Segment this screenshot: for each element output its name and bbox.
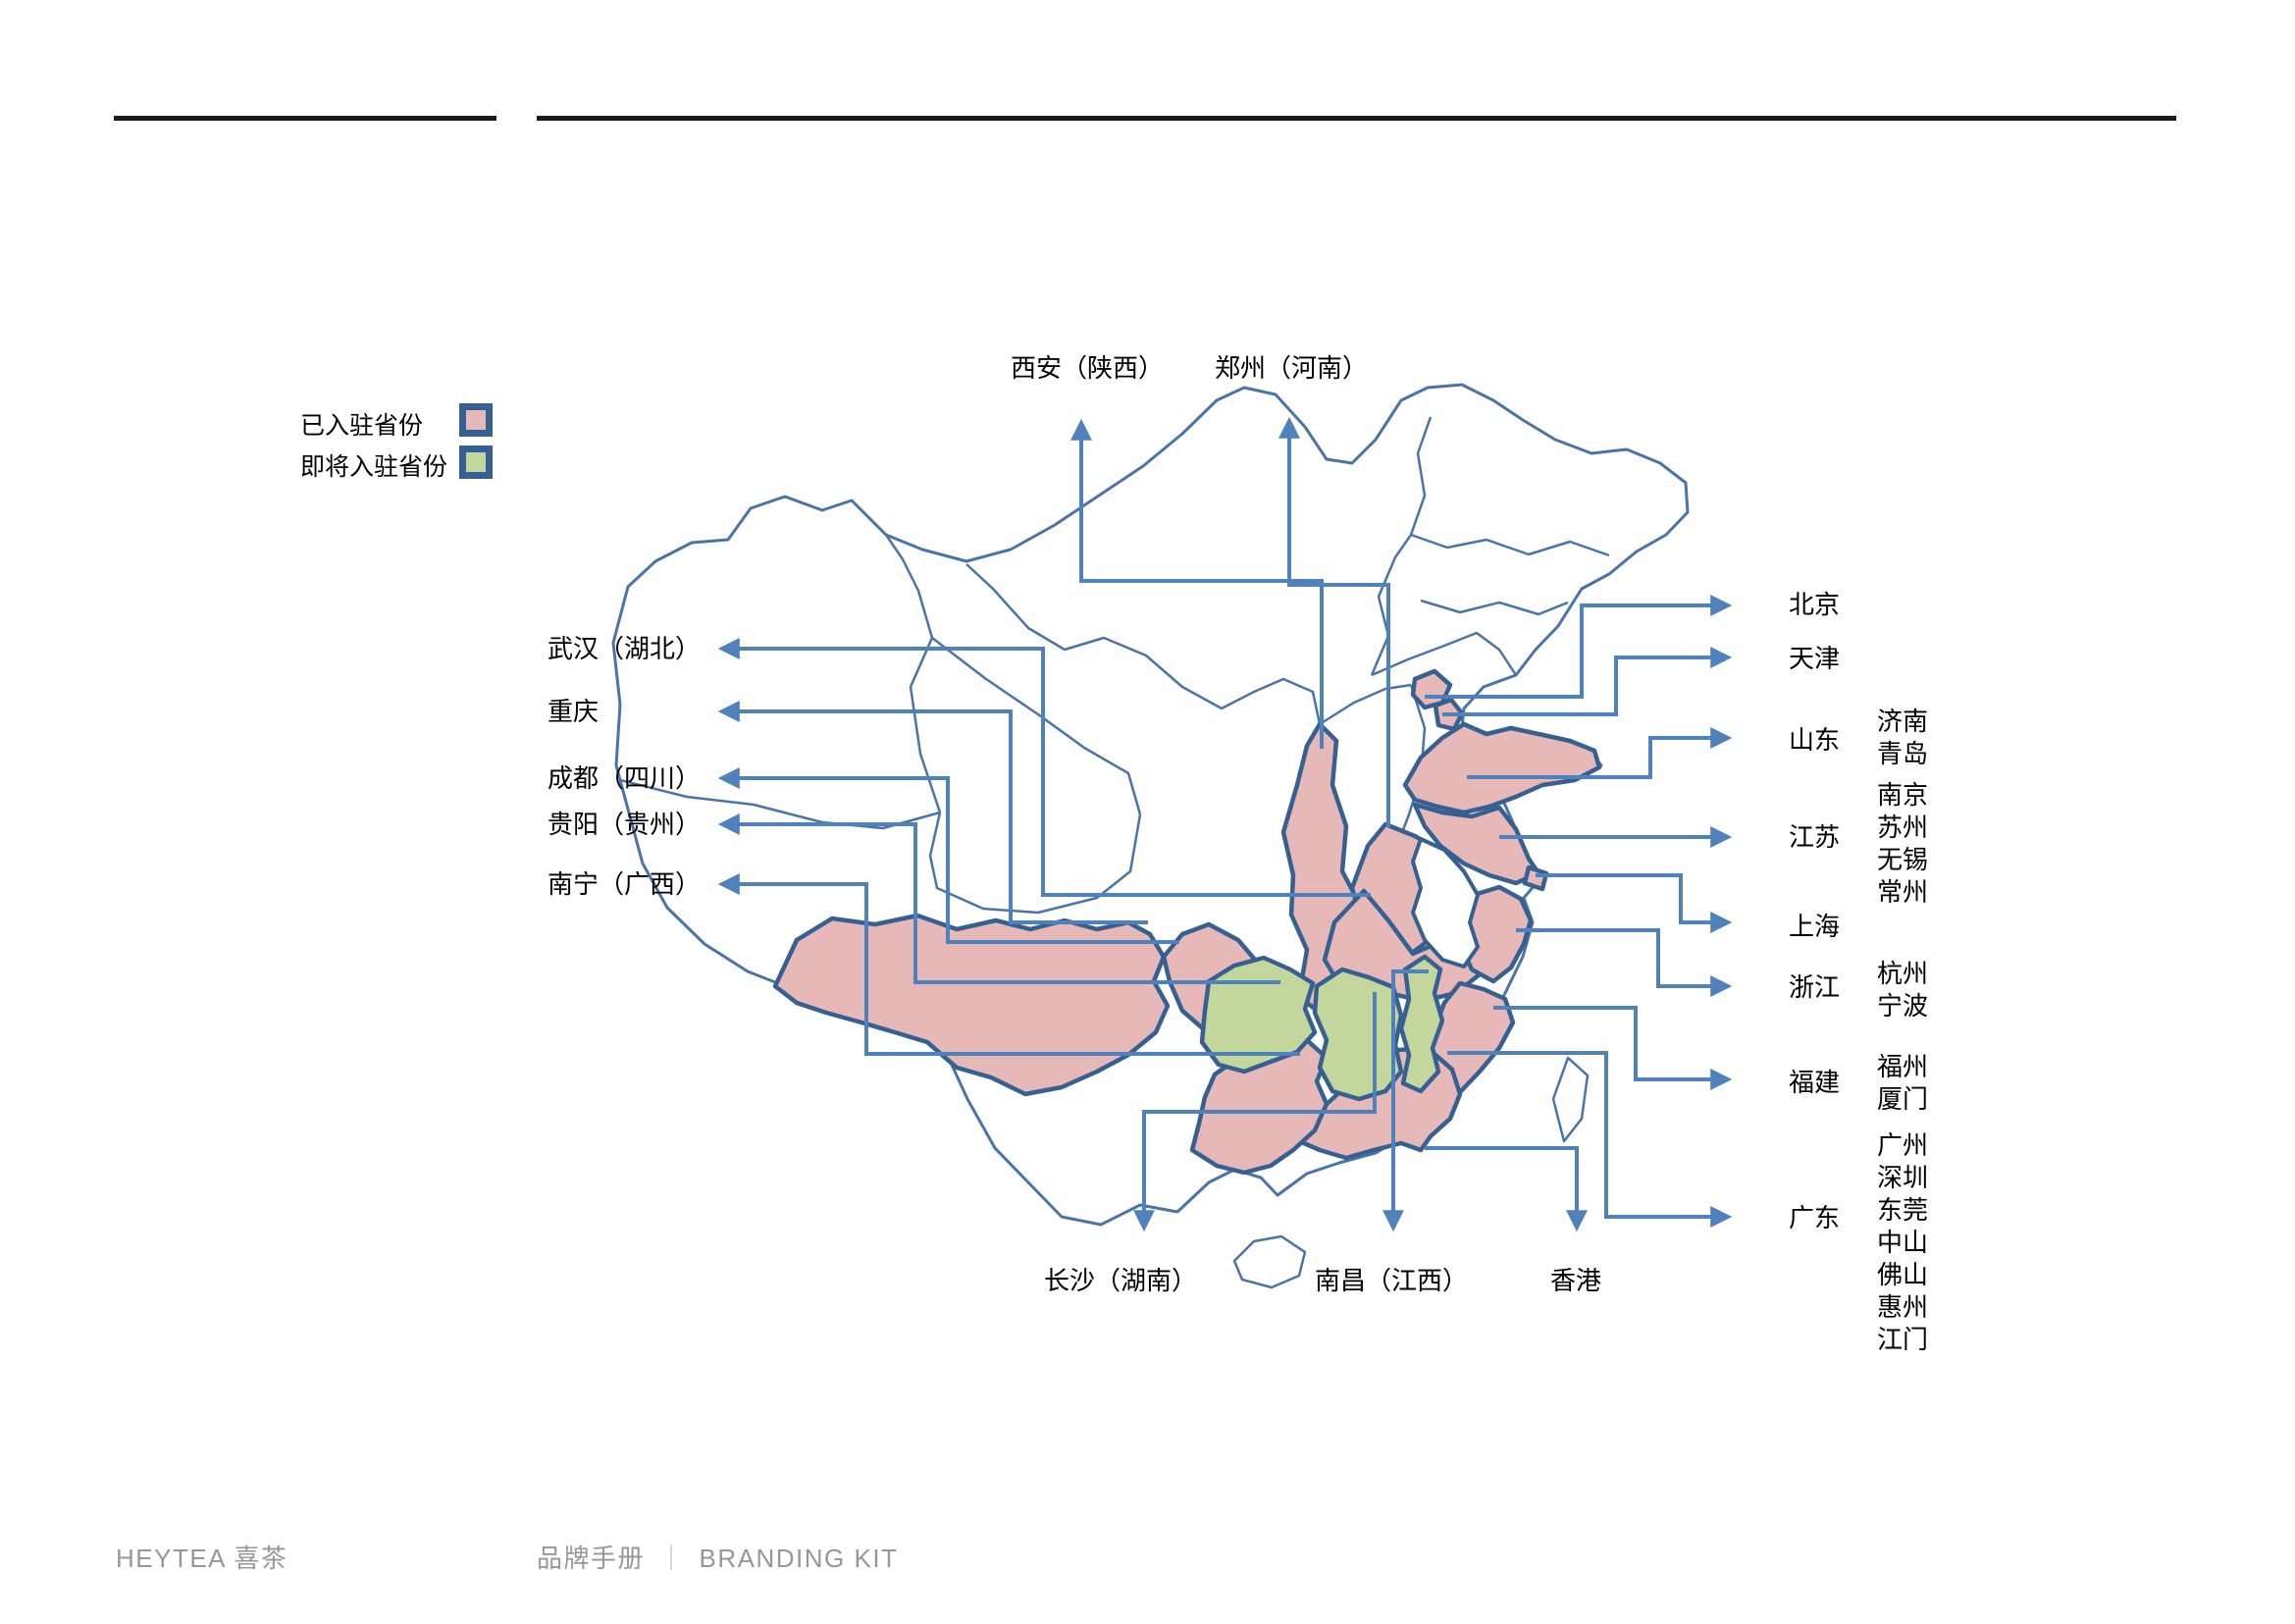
footer-brand: HEYTEA 喜茶 — [116, 1539, 287, 1575]
label-fujian: 福建 — [1789, 1068, 1840, 1097]
province-jiangxi — [1401, 957, 1442, 1091]
label-nanchang-jiangxi: 南昌（江西） — [1315, 1266, 1468, 1295]
label-hongkong: 香港 — [1550, 1266, 1601, 1295]
label-shanghai: 上海 — [1789, 912, 1840, 941]
label-wuhan-hubei: 武汉（湖北） — [548, 634, 701, 663]
island-taiwan — [1553, 1058, 1588, 1141]
label-guangdong: 广东 — [1789, 1203, 1840, 1232]
label-changsha-hunan: 长沙（湖南） — [1044, 1266, 1197, 1295]
citylist-fujian: 福州 厦门 — [1877, 1051, 1928, 1116]
label-zhengzhou-henan: 郑州（河南） — [1215, 353, 1368, 383]
china-outline — [613, 385, 1688, 1225]
callout-zhejiang — [1516, 930, 1727, 986]
footer-title-en: BRANDING KIT — [700, 1544, 899, 1573]
label-tianjin: 天津 — [1789, 644, 1840, 673]
citylist-shandong: 济南 青岛 — [1877, 706, 1928, 770]
china-map — [0, 0, 2295, 1624]
footer-title: 品牌手册｜BRANDING KIT — [537, 1539, 898, 1575]
citylist-zhejiang: 杭州 宁波 — [1877, 958, 1928, 1022]
label-guiyang-guizhou: 贵阳（贵州） — [548, 810, 701, 839]
footer-divider: ｜ — [658, 1544, 686, 1573]
island-hainan — [1234, 1236, 1305, 1287]
label-jiangsu: 江苏 — [1789, 822, 1840, 852]
citylist-jiangsu: 南京 苏州 无锡 常州 — [1877, 779, 1928, 909]
callout-fujian — [1493, 1008, 1727, 1079]
label-xian-shaanxi: 西安（陕西） — [1011, 353, 1164, 383]
brandbook-page: 已入驻省份 即将入驻省份 — [0, 0, 2295, 1624]
footer-title-cn: 品牌手册 — [537, 1544, 645, 1573]
label-zhejiang: 浙江 — [1789, 972, 1840, 1002]
callout-hongkong — [1425, 1148, 1577, 1227]
province-hunan — [1315, 969, 1401, 1099]
label-chongqing: 重庆 — [548, 697, 599, 726]
province-shanghai — [1525, 867, 1546, 889]
citylist-guangdong: 广州 深圳 东莞 中山 佛山 惠州 江门 — [1877, 1129, 1928, 1356]
label-shandong: 山东 — [1789, 725, 1840, 755]
label-nanning-guangxi: 南宁（广西） — [548, 869, 701, 899]
callout-shanghai — [1536, 875, 1727, 922]
label-beijing: 北京 — [1789, 590, 1840, 619]
label-chengdu-sichuan: 成都（四川） — [548, 763, 701, 793]
